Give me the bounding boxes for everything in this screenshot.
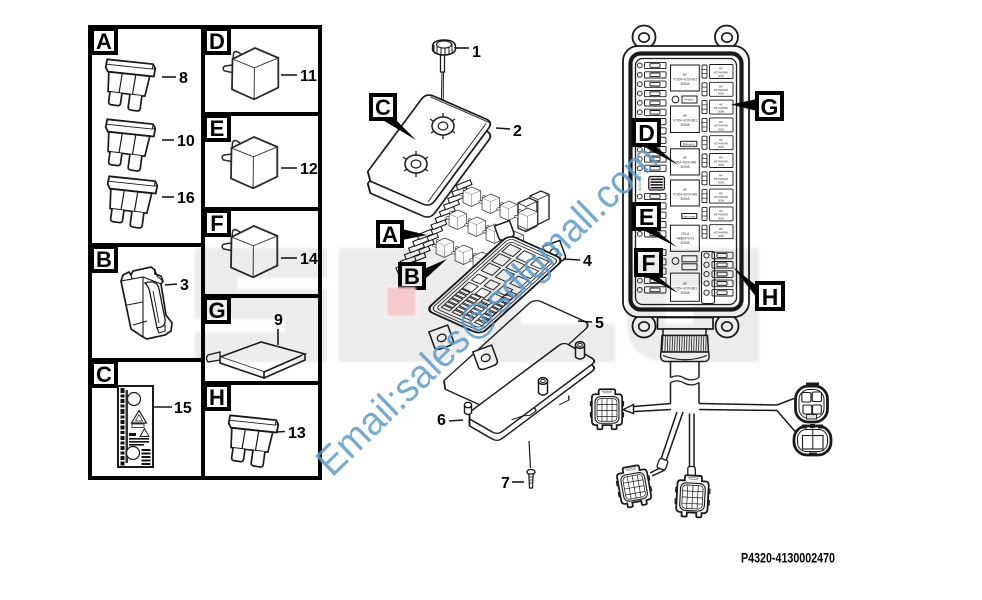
svg-text:11: 11	[300, 68, 317, 85]
svg-text:13: 13	[288, 425, 306, 442]
svg-text:2: 2	[513, 123, 522, 140]
svg-text:H: H	[209, 385, 225, 410]
svg-text:A: A	[382, 222, 398, 247]
svg-text:30W: 30W	[718, 74, 724, 78]
svg-text:30W: 30W	[718, 199, 724, 203]
svg-text:3: 3	[180, 277, 189, 294]
svg-text:C: C	[96, 362, 112, 387]
svg-text:V7204-4C09-801: V7204-4C09-801	[673, 119, 698, 123]
svg-text:7: 7	[501, 475, 510, 492]
svg-text:YELA: YELA	[681, 232, 690, 236]
svg-text:HF: HF	[683, 188, 687, 192]
svg-text:30W: 30W	[718, 216, 724, 220]
svg-text:E: E	[210, 116, 225, 141]
svg-text:V7204-4C09-801: V7204-4C09-801	[673, 287, 698, 291]
svg-text:15: 15	[174, 400, 192, 417]
svg-text:B: B	[96, 247, 112, 272]
svg-text:300VA: 300VA	[680, 123, 690, 127]
svg-text:-4B60470-01: -4B60470-01	[676, 237, 695, 241]
svg-text:300VA: 300VA	[680, 197, 690, 201]
svg-text:8: 8	[179, 70, 188, 87]
svg-text:V7204-4C09-801: V7204-4C09-801	[673, 78, 698, 82]
svg-text:300VA: 300VA	[680, 241, 690, 245]
svg-text:30W: 30W	[718, 181, 724, 185]
svg-text:H: H	[762, 284, 779, 310]
svg-text:D: D	[209, 29, 225, 54]
svg-text:30W: 30W	[718, 145, 724, 149]
svg-text:30W: 30W	[718, 234, 724, 238]
svg-text:G: G	[761, 94, 779, 120]
svg-text:300VA: 300VA	[680, 291, 690, 295]
svg-text:P4320-4130002470: P4320-4130002470	[741, 551, 835, 566]
svg-text:HF: HF	[683, 156, 687, 160]
svg-text:C: C	[375, 95, 391, 120]
svg-text:16: 16	[177, 190, 195, 207]
svg-text:Main relay: Main relay	[683, 214, 697, 218]
svg-text:Flameout: Flameout	[683, 142, 695, 146]
svg-text:10: 10	[177, 133, 195, 150]
svg-text:7904-4C09-948: 7904-4C09-948	[674, 161, 696, 165]
svg-text:300VA: 300VA	[680, 82, 690, 86]
svg-text:HF: HF	[683, 73, 687, 77]
svg-text:F: F	[210, 211, 223, 236]
svg-text:6: 6	[437, 412, 446, 429]
svg-text:forward: forward	[684, 98, 694, 102]
svg-text:HF: HF	[683, 114, 687, 118]
svg-text:30W: 30W	[718, 92, 724, 96]
svg-text:V7204-4C09-948: V7204-4C09-948	[673, 193, 698, 197]
svg-text:30W: 30W	[718, 163, 724, 167]
svg-text:12: 12	[300, 161, 318, 178]
svg-text:1: 1	[472, 44, 481, 61]
svg-text:30W: 30W	[718, 110, 724, 114]
svg-text:30W: 30W	[718, 127, 724, 131]
svg-text:A: A	[96, 29, 112, 54]
svg-text:4: 4	[583, 253, 592, 270]
svg-text:300VA: 300VA	[680, 165, 690, 169]
svg-text:E: E	[639, 204, 654, 230]
